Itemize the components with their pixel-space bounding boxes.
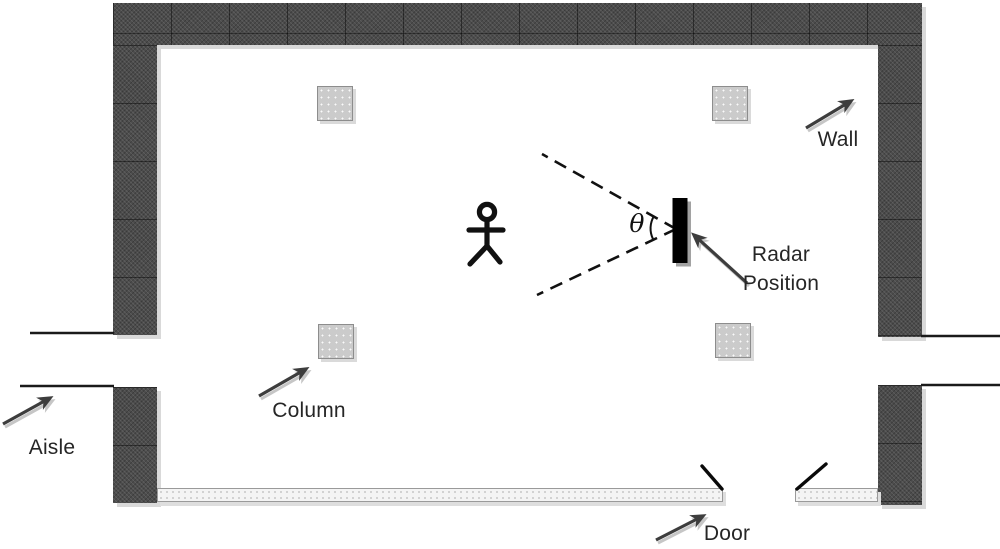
wall-arrow (806, 101, 851, 128)
radar-position-label-line2: Position (721, 269, 841, 298)
door-label: Door (667, 522, 787, 546)
radar-beam-upper (542, 154, 676, 229)
door-leaf-right (797, 464, 826, 489)
radar-position-label: Radar Position (721, 240, 841, 298)
column-arrow (259, 369, 306, 396)
column-label: Column (249, 399, 369, 423)
radar-position-label-line1: Radar (721, 240, 841, 269)
arrow-shadows (5, 104, 853, 543)
door-leaf-left (702, 466, 722, 489)
theta-label: θ (620, 209, 654, 238)
aisle-label: Aisle (0, 436, 112, 460)
aisle-arrow (3, 398, 50, 424)
wall-label: Wall (778, 128, 898, 152)
diagram-overlay (0, 0, 1000, 549)
annotation-arrows (3, 101, 851, 540)
person-right-leg (487, 246, 500, 262)
room-layout-diagram: Wall Radar Position Column Aisle Door θ (0, 0, 1000, 549)
person-icon (469, 204, 503, 264)
radar-beam-lower (537, 229, 676, 295)
person-head (479, 204, 494, 219)
person-left-leg (470, 246, 487, 264)
radar-marker (673, 198, 688, 263)
